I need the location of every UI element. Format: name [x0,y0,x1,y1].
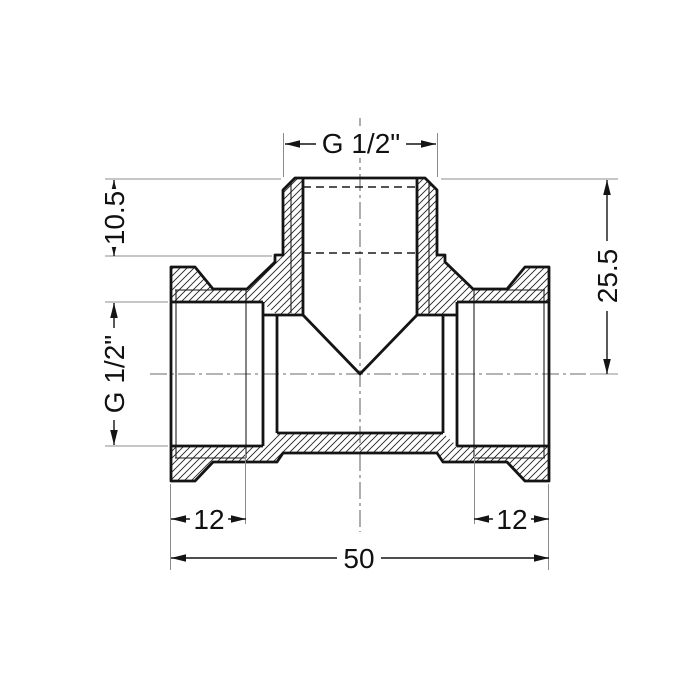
dim-overall-length-label: 50 [343,543,374,574]
dim-top-thread-label: G 1/2" [322,128,400,159]
dim-left-depth-label: 12 [193,504,224,535]
arrowhead [421,140,436,148]
drawing-sheet: G 1/2" 10.5 G 1/2" 25.5 12 12 50 [0,0,700,700]
arrowhead [474,515,489,523]
ext-branch-depth [105,179,281,256]
arrowhead [171,554,186,562]
arrowhead [110,430,118,445]
arrowhead [110,303,118,318]
arrowhead [171,515,186,523]
arrowhead [534,515,549,523]
arrowhead [534,554,549,562]
dim-right-depth-label: 12 [496,504,527,535]
dim-left-thread-label: G 1/2" [99,335,130,413]
arrowhead [603,359,611,374]
dim-branch-depth-label: 10.5 [99,191,130,246]
extension-lines [105,133,618,570]
arrowhead [603,180,611,195]
arrowhead [231,515,246,523]
arrowhead [285,140,300,148]
technical-drawing: G 1/2" 10.5 G 1/2" 25.5 12 12 50 [0,0,700,700]
dim-right-height-label: 25.5 [592,249,623,304]
